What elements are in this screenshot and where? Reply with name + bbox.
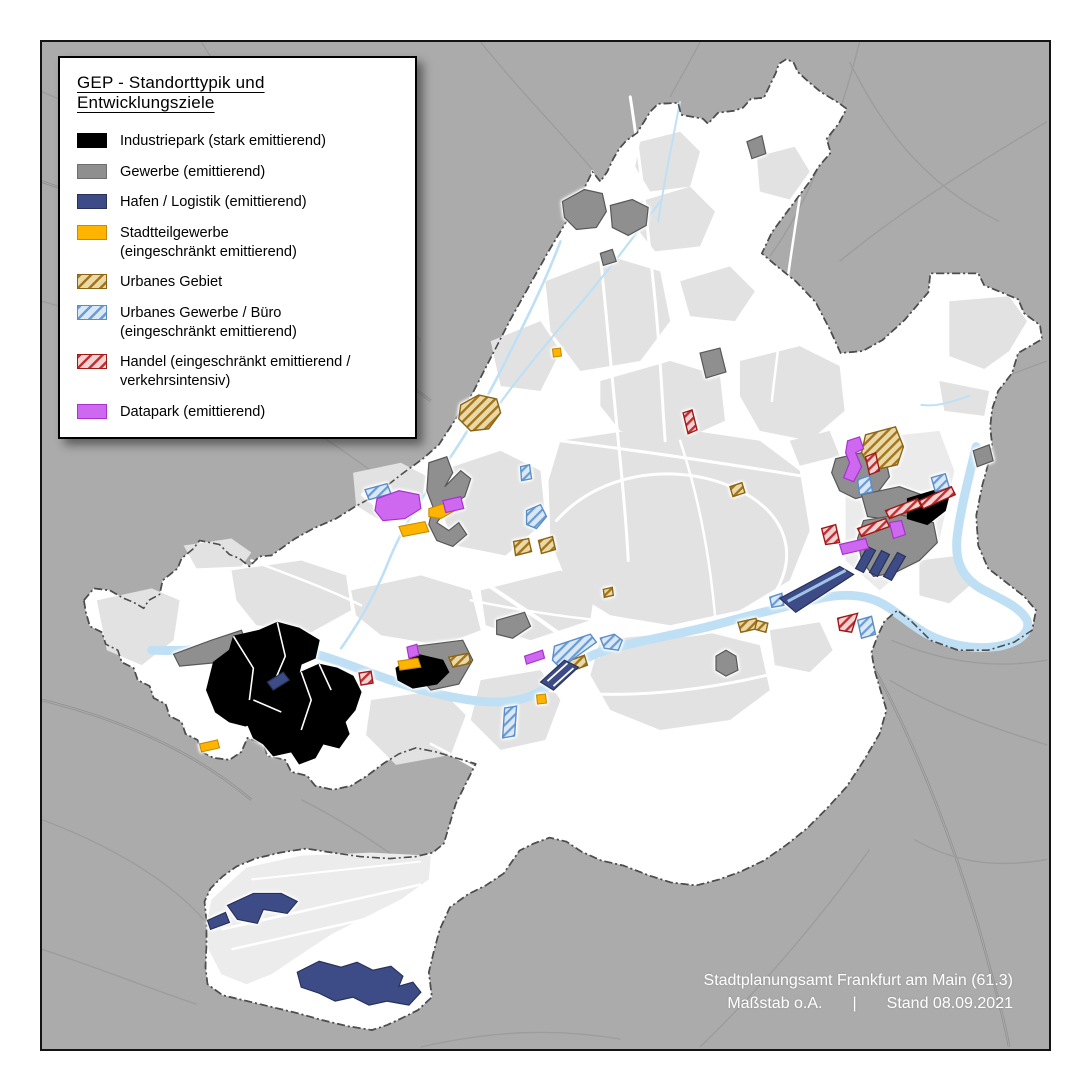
zone-stadtteilgewerbe <box>537 694 547 704</box>
handel-swatch <box>77 354 107 369</box>
legend-label: Urbanes Gebiet <box>120 274 222 290</box>
legend-label: Handel (eingeschränkt emittierend / <box>120 354 350 370</box>
legend-item-urbanes-gewerbe-buero: Urbanes Gewerbe / Büro(eingeschränkt emi… <box>77 304 399 341</box>
legend-item-datapark: Datapark (emittierend) <box>77 403 399 422</box>
legend-label-line2: (eingeschränkt emittierend) <box>120 323 297 342</box>
legend-label-line2: (eingeschränkt emittierend) <box>120 243 297 262</box>
zone-urbanes-gewerbe <box>858 616 876 638</box>
map-credits: Stadtplanungsamt Frankfurt am Main (61.3… <box>704 969 1013 1015</box>
zone-urbanes-gewerbe <box>503 706 517 738</box>
zone-urbanes-gebiet <box>603 587 613 597</box>
legend-item-stadtteilgewerbe: Stadtteilgewerbe(eingeschränkt emittiere… <box>77 224 399 261</box>
credits-line1: Stadtplanungsamt Frankfurt am Main (61.3… <box>704 969 1013 992</box>
credits-separator: | <box>853 992 857 1015</box>
legend-item-handel: Handel (eingeschränkt emittierend /verke… <box>77 353 399 390</box>
legend-item-gewerbe: Gewerbe (emittierend) <box>77 163 399 182</box>
zone-urbanes-gewerbe <box>858 476 873 495</box>
zone-urbanes-gebiet <box>755 620 768 632</box>
zone-stadtteilgewerbe <box>552 348 561 357</box>
legend-item-hafen-logistik: Hafen / Logistik (emittierend) <box>77 193 399 212</box>
industriepark-swatch <box>77 133 107 148</box>
zone-handel <box>822 525 840 545</box>
legend-panel: GEP - Standorttypik und Entwicklungsziel… <box>58 56 417 439</box>
credits-scale: Maßstab o.A. <box>727 995 822 1012</box>
zone-handel <box>359 671 373 685</box>
legend-label: Industriepark (stark emittierend) <box>120 133 326 149</box>
gewerbe-swatch <box>77 164 107 179</box>
urbanes-gewerbe-buero-swatch <box>77 305 107 320</box>
zone-urbanes-gebiet <box>539 537 556 554</box>
map-frame: GEP - Standorttypik und Entwicklungsziel… <box>40 40 1051 1051</box>
datapark-swatch <box>77 404 107 419</box>
legend-title: GEP - Standorttypik und Entwicklungsziel… <box>77 73 399 113</box>
hafen-logistik-swatch <box>77 194 107 209</box>
credits-line2: Maßstab o.A.|Stand 08.09.2021 <box>704 992 1013 1015</box>
legend-label: Gewerbe (emittierend) <box>120 164 265 180</box>
legend-item-industriepark: Industriepark (stark emittierend) <box>77 132 399 151</box>
legend-label: Stadtteilgewerbe <box>120 225 229 241</box>
legend-item-urbanes-gebiet: Urbanes Gebiet <box>77 273 399 292</box>
urbanes-gebiet-swatch <box>77 274 107 289</box>
legend-label: Hafen / Logistik (emittierend) <box>120 194 307 210</box>
legend-label: Urbanes Gewerbe / Büro <box>120 305 281 321</box>
stadtteilgewerbe-swatch <box>77 225 107 240</box>
zone-datapark <box>407 644 419 658</box>
page: GEP - Standorttypik und Entwicklungsziel… <box>0 0 1091 1091</box>
zone-urbanes-gewerbe <box>521 465 532 481</box>
legend-label: Datapark (emittierend) <box>120 404 265 420</box>
legend-label-line2: verkehrsintensiv) <box>120 372 350 391</box>
credits-date: Stand 08.09.2021 <box>887 995 1013 1012</box>
